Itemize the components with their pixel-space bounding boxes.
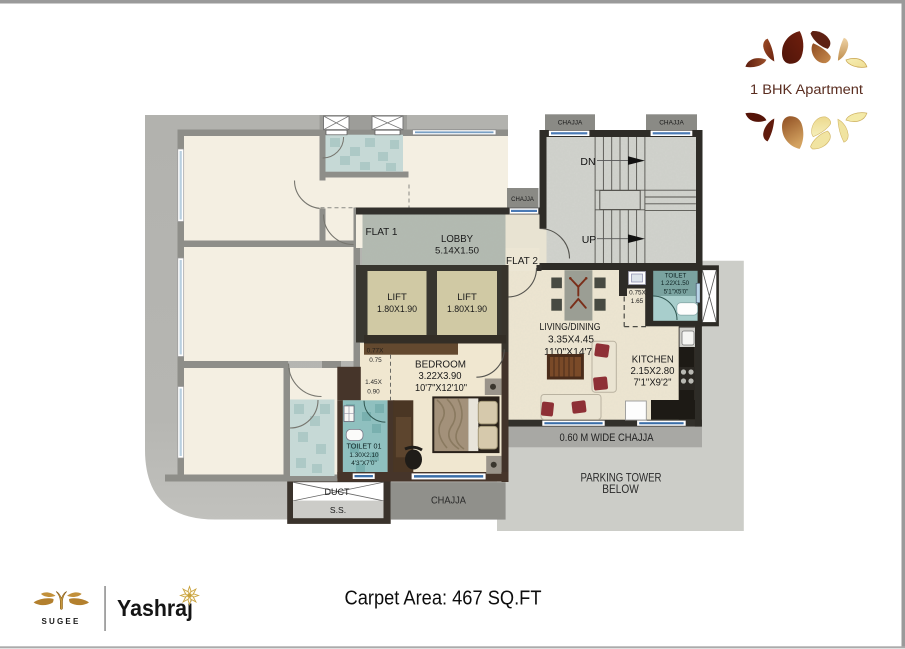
svg-text:LOBBY: LOBBY: [441, 233, 473, 245]
svg-text:1 BHK Apartment: 1 BHK Apartment: [750, 82, 863, 98]
svg-text:7'1"X9'2": 7'1"X9'2": [634, 378, 672, 389]
svg-text:3.35X4.45: 3.35X4.45: [548, 335, 594, 346]
svg-text:0.77X: 0.77X: [367, 348, 384, 355]
svg-text:5'1"X5'0": 5'1"X5'0": [664, 289, 689, 296]
svg-text:LIVING/DINING: LIVING/DINING: [540, 321, 601, 333]
svg-text:0.75X: 0.75X: [629, 290, 646, 297]
svg-text:SUGEE: SUGEE: [41, 617, 80, 626]
svg-text:0.60 M WIDE CHAJJA: 0.60 M WIDE CHAJJA: [560, 432, 655, 444]
svg-text:DUCT: DUCT: [325, 487, 350, 497]
svg-text:LIFT: LIFT: [457, 292, 477, 303]
svg-text:Carpet Area: 467 SQ.FT: Carpet Area: 467 SQ.FT: [345, 588, 542, 610]
svg-text:FLAT 1: FLAT 1: [366, 226, 398, 238]
svg-text:LIFT: LIFT: [387, 292, 407, 303]
svg-text:BEDROOM: BEDROOM: [415, 359, 466, 371]
svg-text:Yashraj: Yashraj: [117, 595, 193, 621]
svg-text:1.80X1.90: 1.80X1.90: [377, 304, 417, 314]
svg-text:1.22X1.50: 1.22X1.50: [661, 280, 690, 287]
svg-text:TOILET 01: TOILET 01: [347, 442, 382, 451]
svg-text:1.45X: 1.45X: [365, 379, 382, 386]
svg-text:1.30X2.10: 1.30X2.10: [349, 452, 379, 459]
svg-text:PARKING TOWER: PARKING TOWER: [581, 473, 662, 485]
svg-text:CHAJJA: CHAJJA: [511, 197, 534, 203]
svg-text:3.22X3.90: 3.22X3.90: [419, 371, 462, 382]
svg-text:CHAJJA: CHAJJA: [558, 120, 583, 127]
svg-text:10'7"X12'10": 10'7"X12'10": [415, 383, 467, 394]
svg-text:KITCHEN: KITCHEN: [632, 354, 674, 366]
svg-text:CHAJJA: CHAJJA: [659, 120, 684, 127]
svg-text:UP: UP: [582, 234, 597, 246]
svg-text:0.75: 0.75: [369, 357, 382, 364]
svg-text:CHAJJA: CHAJJA: [431, 495, 466, 507]
svg-text:TOILET: TOILET: [665, 272, 687, 279]
svg-text:4'3"X7'0": 4'3"X7'0": [351, 460, 376, 467]
svg-text:1.80X1.90: 1.80X1.90: [447, 304, 487, 314]
svg-text:2.15X2.80: 2.15X2.80: [631, 366, 675, 377]
svg-text:5.14X1.50: 5.14X1.50: [435, 246, 479, 257]
svg-text:DN: DN: [580, 156, 595, 168]
svg-text:0.90: 0.90: [367, 389, 380, 396]
svg-text:1.65: 1.65: [631, 298, 644, 305]
svg-text:S.S.: S.S.: [330, 505, 346, 515]
svg-text:BELOW: BELOW: [602, 484, 639, 496]
